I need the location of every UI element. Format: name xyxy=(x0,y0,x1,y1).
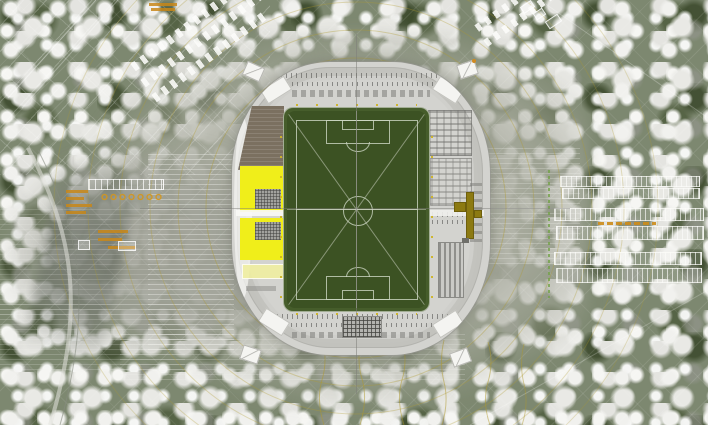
goal-area-south xyxy=(342,290,374,300)
annotation-orange-text xyxy=(149,3,177,6)
parking-row xyxy=(556,268,702,283)
north-stand-ticks xyxy=(272,82,450,86)
block-detail-grid xyxy=(255,189,281,209)
entrance-cross-arm-east xyxy=(474,210,482,218)
entrance-cross-arm-west xyxy=(454,202,466,212)
south-building-grid xyxy=(342,316,382,338)
entrance-cross-bar xyxy=(466,192,474,239)
plan-box xyxy=(78,240,90,250)
annotation-marker-dots xyxy=(100,192,164,202)
parking-row xyxy=(554,208,704,221)
entrance-cross-base xyxy=(462,238,469,243)
east-stand-rooms xyxy=(428,110,472,156)
annotation-orange-text xyxy=(66,211,86,214)
parking-row xyxy=(556,226,704,240)
annotation-marker-dot xyxy=(472,59,476,63)
annotation-orange-text xyxy=(98,230,128,233)
annotation-orange-text xyxy=(66,190,88,193)
site-plan xyxy=(0,0,708,425)
parking-row xyxy=(560,176,700,187)
annotation-orange-text xyxy=(151,8,175,11)
parking-row xyxy=(554,252,702,265)
north-stand-ticks xyxy=(266,73,456,78)
west-concourse-detail xyxy=(246,286,276,291)
west-axis-walkway xyxy=(236,210,284,216)
plan-row-west xyxy=(88,179,164,190)
annotation-orange-text xyxy=(598,222,656,225)
hospitality-block-lower xyxy=(240,218,283,260)
east-stand-stairs xyxy=(438,242,464,298)
annotation-orange-text xyxy=(66,204,92,207)
block-detail-grid xyxy=(255,222,281,240)
parking-row xyxy=(562,188,700,199)
site-axis-vertical xyxy=(356,34,357,394)
hospitality-block-small xyxy=(242,264,284,279)
hospitality-block-upper xyxy=(240,166,283,212)
penalty-arc-south xyxy=(346,267,370,277)
annotation-orange-text xyxy=(66,197,84,200)
plan-box xyxy=(118,241,136,251)
goal-area-north xyxy=(342,120,374,130)
site-axis-horizontal xyxy=(140,208,570,209)
north-stand-blocks xyxy=(292,90,430,97)
